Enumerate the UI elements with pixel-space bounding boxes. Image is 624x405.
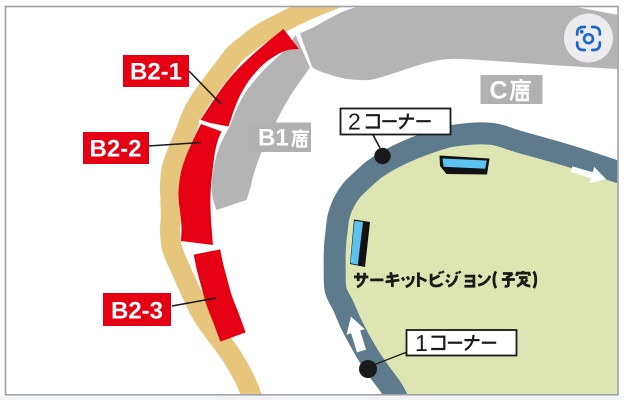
- svg-text:1: 1: [415, 330, 428, 356]
- svg-text:B2-2: B2-2: [90, 136, 142, 163]
- svg-text:B2-3: B2-3: [111, 298, 163, 325]
- svg-text:2: 2: [348, 109, 361, 135]
- svg-text:C: C: [490, 76, 508, 104]
- svg-text:B2-1: B2-1: [130, 59, 182, 86]
- svg-text:B1: B1: [258, 125, 289, 152]
